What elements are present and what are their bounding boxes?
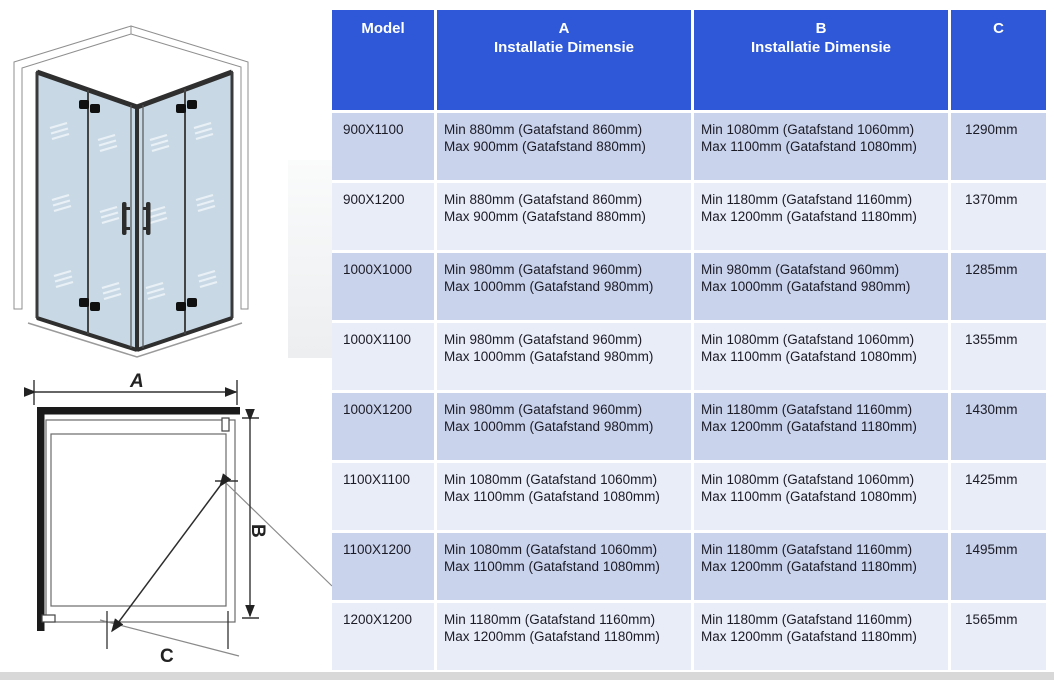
dim-c-label: C bbox=[160, 646, 174, 667]
plan-wall-top bbox=[37, 407, 240, 415]
cell-line: 1285mm bbox=[965, 261, 1042, 278]
shadow-strip bbox=[288, 160, 332, 358]
dim-a-cell: Min 980mm (Gatafstand 960mm)Max 1000mm (… bbox=[437, 253, 691, 320]
cell-line: Max 1100mm (Gatafstand 1080mm) bbox=[444, 488, 687, 505]
dim-b-cell: Min 980mm (Gatafstand 960mm)Max 1000mm (… bbox=[694, 253, 948, 320]
cell-line: Max 1000mm (Gatafstand 980mm) bbox=[444, 348, 687, 365]
cell-line: Max 1100mm (Gatafstand 1080mm) bbox=[701, 138, 944, 155]
cell-line: Max 900mm (Gatafstand 880mm) bbox=[444, 208, 687, 225]
cell-line: 900X1200 bbox=[343, 191, 430, 208]
cell-line: Min 1180mm (Gatafstand 1160mm) bbox=[701, 191, 944, 208]
model-cell: 1100X1200 bbox=[332, 533, 434, 600]
plan-wall-left bbox=[37, 407, 45, 631]
cell-line: Max 1000mm (Gatafstand 980mm) bbox=[444, 418, 687, 435]
cell-line: 1000X1200 bbox=[343, 401, 430, 418]
col-header-model: Model bbox=[332, 10, 434, 110]
plan-handle-top-right bbox=[222, 418, 229, 431]
corner-shower-3d-diagram bbox=[0, 0, 280, 365]
bottom-bar bbox=[0, 672, 1054, 680]
cell-line: Max 1200mm (Gatafstand 1180mm) bbox=[701, 208, 944, 225]
cell-line: Max 1100mm (Gatafstand 1080mm) bbox=[444, 558, 687, 575]
model-cell: 900X1100 bbox=[332, 113, 434, 180]
cell-line: 1495mm bbox=[965, 541, 1042, 558]
model-cell: 1000X1100 bbox=[332, 323, 434, 390]
dim-a-label: A bbox=[129, 371, 144, 392]
door-open-right-line bbox=[226, 483, 332, 586]
model-cell: 1000X1000 bbox=[332, 253, 434, 320]
dim-c-cell: 1495mm bbox=[951, 533, 1046, 600]
col-header-b: B Installatie Dimensie bbox=[694, 10, 948, 110]
cell-line: 1000X1000 bbox=[343, 261, 430, 278]
col-header-b-sub: Installatie Dimensie bbox=[694, 38, 948, 57]
cell-line: Min 1180mm (Gatafstand 1160mm) bbox=[701, 541, 944, 558]
dim-b-cell: Min 1080mm (Gatafstand 1060mm)Max 1100mm… bbox=[694, 463, 948, 530]
plan-view-diagram: A C B bbox=[20, 368, 335, 675]
dim-c-cell: 1430mm bbox=[951, 393, 1046, 460]
cell-line: Max 1200mm (Gatafstand 1180mm) bbox=[701, 418, 944, 435]
dim-a-cell: Min 880mm (Gatafstand 860mm)Max 900mm (G… bbox=[437, 183, 691, 250]
model-cell: 1000X1200 bbox=[332, 393, 434, 460]
cell-line: 1430mm bbox=[965, 401, 1042, 418]
dim-b-cell: Min 1080mm (Gatafstand 1060mm)Max 1100mm… bbox=[694, 113, 948, 180]
col-header-b-letter: B bbox=[694, 19, 948, 38]
dim-b-cell: Min 1080mm (Gatafstand 1060mm)Max 1100mm… bbox=[694, 323, 948, 390]
cell-line: 1000X1100 bbox=[343, 331, 430, 348]
cell-line: 1100X1100 bbox=[343, 471, 430, 488]
model-cell: 1100X1100 bbox=[332, 463, 434, 530]
cell-line: Min 1180mm (Gatafstand 1160mm) bbox=[444, 611, 687, 628]
cell-line: Max 1000mm (Gatafstand 980mm) bbox=[444, 278, 687, 295]
dim-b-label: B bbox=[247, 524, 268, 538]
dim-b-cell: Min 1180mm (Gatafstand 1160mm)Max 1200mm… bbox=[694, 533, 948, 600]
cell-line: Min 980mm (Gatafstand 960mm) bbox=[444, 331, 687, 348]
col-header-a: A Installatie Dimensie bbox=[437, 10, 691, 110]
cell-line: 900X1100 bbox=[343, 121, 430, 138]
cell-line: 1565mm bbox=[965, 611, 1042, 628]
cell-line: Min 880mm (Gatafstand 860mm) bbox=[444, 191, 687, 208]
cell-line: 1370mm bbox=[965, 191, 1042, 208]
dim-a-cell: Min 1080mm (Gatafstand 1060mm)Max 1100mm… bbox=[437, 533, 691, 600]
spec-table: Model A Installatie Dimensie B Installat… bbox=[332, 10, 1046, 670]
model-cell: 900X1200 bbox=[332, 183, 434, 250]
dim-b-cell: Min 1180mm (Gatafstand 1160mm)Max 1200mm… bbox=[694, 183, 948, 250]
cell-line: Max 1100mm (Gatafstand 1080mm) bbox=[701, 488, 944, 505]
model-cell: 1200X1200 bbox=[332, 603, 434, 670]
col-header-c: C bbox=[951, 10, 1046, 110]
cell-line: Min 1080mm (Gatafstand 1060mm) bbox=[701, 331, 944, 348]
cell-line: Max 1000mm (Gatafstand 980mm) bbox=[701, 278, 944, 295]
page: A C B Model A Installatie Dimens bbox=[0, 0, 1054, 680]
cell-line: Min 980mm (Gatafstand 960mm) bbox=[444, 261, 687, 278]
dim-c-cell: 1290mm bbox=[951, 113, 1046, 180]
cell-line: Min 1180mm (Gatafstand 1160mm) bbox=[701, 401, 944, 418]
plan-handle-bottom-left bbox=[42, 615, 55, 622]
cell-line: Max 1200mm (Gatafstand 1180mm) bbox=[444, 628, 687, 645]
cell-line: 1425mm bbox=[965, 471, 1042, 488]
cell-line: 1100X1200 bbox=[343, 541, 430, 558]
cell-line: Max 1200mm (Gatafstand 1180mm) bbox=[701, 628, 944, 645]
diagonal-arrow bbox=[112, 486, 220, 631]
cell-line: Max 1100mm (Gatafstand 1080mm) bbox=[701, 348, 944, 365]
dim-a-cell: Min 980mm (Gatafstand 960mm)Max 1000mm (… bbox=[437, 393, 691, 460]
col-header-a-letter: A bbox=[437, 19, 691, 38]
cell-line: Min 880mm (Gatafstand 860mm) bbox=[444, 121, 687, 138]
cell-line: Min 980mm (Gatafstand 960mm) bbox=[444, 401, 687, 418]
dim-a-cell: Min 980mm (Gatafstand 960mm)Max 1000mm (… bbox=[437, 323, 691, 390]
dim-c-cell: 1565mm bbox=[951, 603, 1046, 670]
cell-line: Min 1080mm (Gatafstand 1060mm) bbox=[444, 471, 687, 488]
cell-line: Min 1180mm (Gatafstand 1160mm) bbox=[701, 611, 944, 628]
cell-line: 1355mm bbox=[965, 331, 1042, 348]
dim-c-cell: 1355mm bbox=[951, 323, 1046, 390]
plan-frame-inner bbox=[51, 434, 226, 606]
dim-c-cell: 1285mm bbox=[951, 253, 1046, 320]
dim-a-cell: Min 1180mm (Gatafstand 1160mm)Max 1200mm… bbox=[437, 603, 691, 670]
dim-b-cell: Min 1180mm (Gatafstand 1160mm)Max 1200mm… bbox=[694, 603, 948, 670]
col-header-c-label: C bbox=[951, 19, 1046, 38]
dim-b-cell: Min 1180mm (Gatafstand 1160mm)Max 1200mm… bbox=[694, 393, 948, 460]
cell-line: Min 980mm (Gatafstand 960mm) bbox=[701, 261, 944, 278]
cell-line: 1200X1200 bbox=[343, 611, 430, 628]
dim-a-cell: Min 880mm (Gatafstand 860mm)Max 900mm (G… bbox=[437, 113, 691, 180]
cell-line: Min 1080mm (Gatafstand 1060mm) bbox=[701, 121, 944, 138]
cell-line: Max 900mm (Gatafstand 880mm) bbox=[444, 138, 687, 155]
col-header-model-label: Model bbox=[332, 19, 434, 38]
dim-a-cell: Min 1080mm (Gatafstand 1060mm)Max 1100mm… bbox=[437, 463, 691, 530]
cell-line: Min 1080mm (Gatafstand 1060mm) bbox=[444, 541, 687, 558]
dim-c-cell: 1370mm bbox=[951, 183, 1046, 250]
dim-c-cell: 1425mm bbox=[951, 463, 1046, 530]
col-header-a-sub: Installatie Dimensie bbox=[437, 38, 691, 57]
cell-line: Max 1200mm (Gatafstand 1180mm) bbox=[701, 558, 944, 575]
cell-line: 1290mm bbox=[965, 121, 1042, 138]
cell-line: Min 1080mm (Gatafstand 1060mm) bbox=[701, 471, 944, 488]
